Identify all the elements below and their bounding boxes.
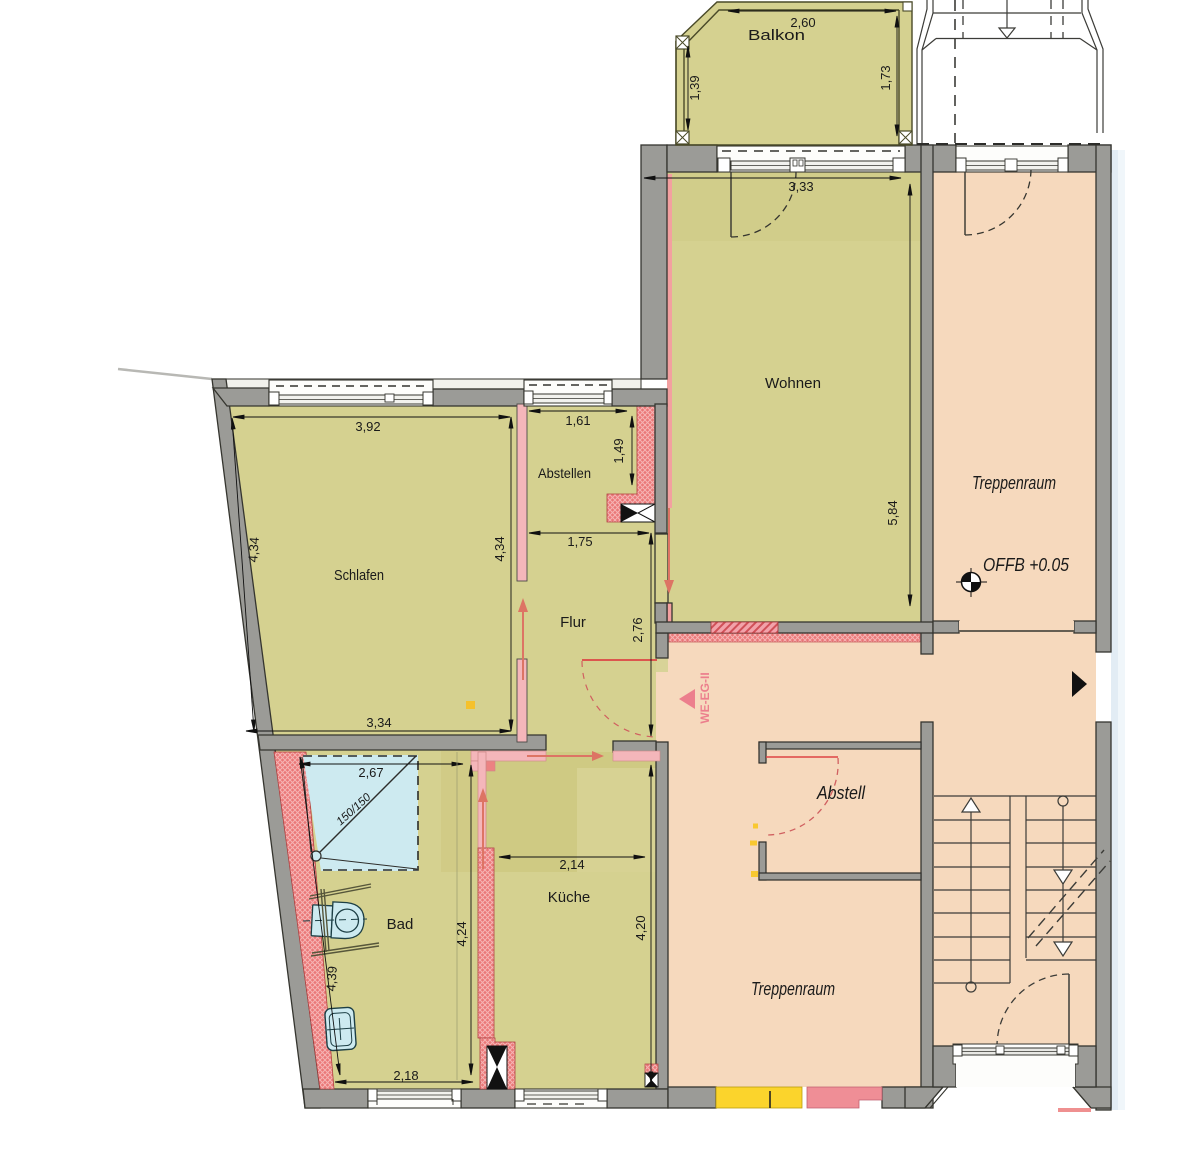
svg-text:4,34: 4,34 — [492, 536, 507, 561]
svg-text:1,39: 1,39 — [687, 75, 702, 100]
svg-text:Schlafen: Schlafen — [334, 567, 384, 584]
svg-text:2,14: 2,14 — [559, 857, 584, 872]
svg-text:OFFB +0.05: OFFB +0.05 — [983, 555, 1070, 575]
svg-text:WE-EG-II: WE-EG-II — [698, 672, 712, 723]
svg-text:2,18: 2,18 — [393, 1068, 418, 1083]
svg-text:4,24: 4,24 — [454, 921, 469, 946]
svg-text:3,34: 3,34 — [366, 715, 391, 730]
svg-text:1,49: 1,49 — [611, 438, 626, 463]
svg-text:Treppenraum: Treppenraum — [972, 473, 1056, 493]
svg-text:Küche: Küche — [548, 889, 591, 906]
svg-text:5,84: 5,84 — [885, 500, 900, 525]
svg-text:Abstellen: Abstellen — [538, 465, 591, 481]
svg-text:3,33: 3,33 — [788, 179, 813, 194]
svg-text:Balkon: Balkon — [748, 28, 805, 44]
svg-text:Wohnen: Wohnen — [765, 375, 821, 392]
svg-text:2,67: 2,67 — [358, 765, 383, 780]
svg-text:1,73: 1,73 — [878, 65, 893, 90]
svg-text:2,76: 2,76 — [630, 617, 645, 642]
svg-text:Abstell: Abstell — [816, 783, 866, 803]
svg-text:Treppenraum: Treppenraum — [751, 979, 835, 999]
svg-text:Flur: Flur — [560, 614, 586, 631]
svg-text:3,92: 3,92 — [355, 419, 380, 434]
svg-text:Bad: Bad — [387, 916, 414, 933]
svg-text:4,20: 4,20 — [633, 915, 648, 940]
svg-text:2,60: 2,60 — [790, 15, 815, 30]
svg-text:1,61: 1,61 — [565, 413, 590, 428]
svg-text:1,75: 1,75 — [567, 534, 592, 549]
svg-text:4,39: 4,39 — [323, 966, 340, 992]
svg-text:4,34: 4,34 — [245, 537, 262, 563]
